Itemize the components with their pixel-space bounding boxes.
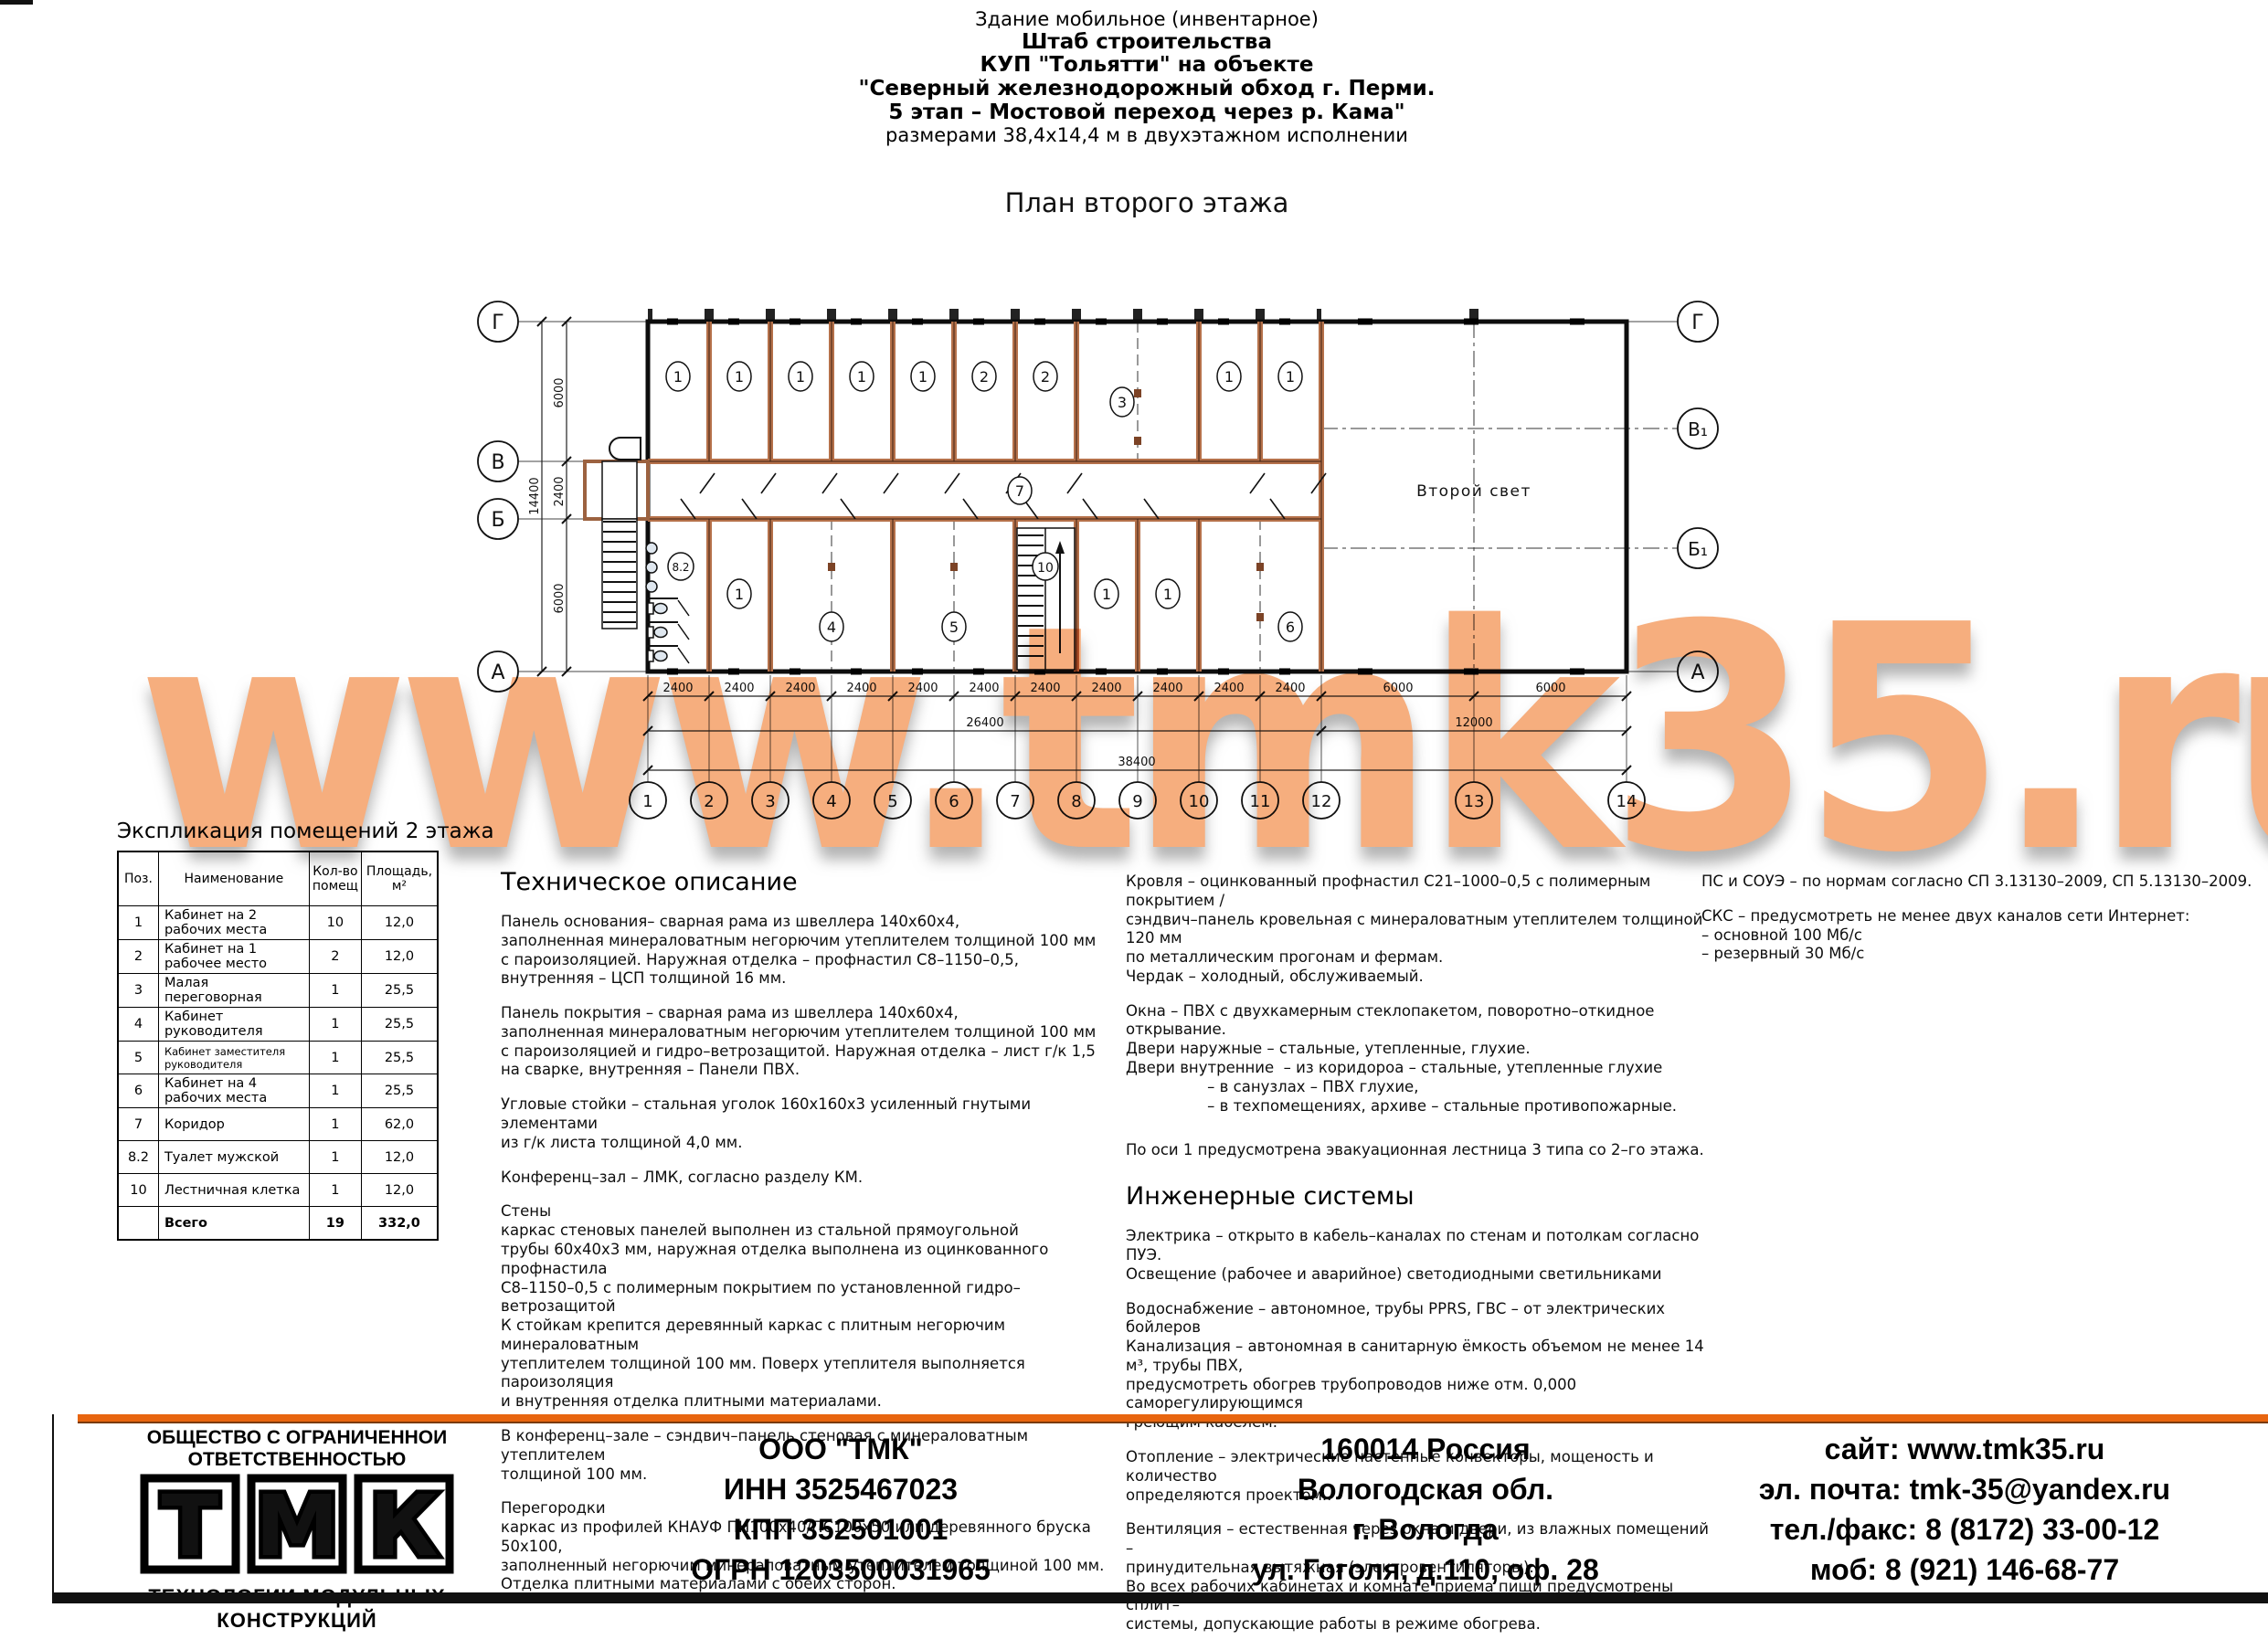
footer-company-requisites: ООО "ТМК" ИНН 3525467023 КПП 352501001 О… (603, 1429, 1078, 1590)
paragraph-corner-posts: Угловые стойки – стальная уголок 160х160… (501, 1095, 1122, 1152)
address-postcode: 160014 Россия (1179, 1429, 1672, 1469)
svg-text:5: 5 (887, 792, 897, 811)
tmk-logo: Т М К (139, 1473, 455, 1577)
door-swings (629, 473, 1326, 519)
paragraph-windows-doors: Окна – ПВХ с двухкамерным стеклопакетом,… (1126, 1002, 1720, 1116)
svg-text:2: 2 (1041, 368, 1050, 386)
address-city: г. Вологда (1179, 1509, 1672, 1550)
svg-text:8.2: 8.2 (672, 561, 689, 574)
paragraph-roofing: Кровля – оцинкованный профнастил С21–100… (1126, 873, 1720, 987)
svg-text:12000: 12000 (1455, 716, 1492, 730)
svg-text:1: 1 (1102, 586, 1111, 603)
svg-text:5: 5 (949, 619, 959, 636)
table-row: 8.2Туалет мужской112,0 (118, 1141, 438, 1174)
plan-title: План второго этажа (1005, 187, 1289, 218)
header-line-6: размерами 38,4х14,4 м в двухэтажном испо… (777, 125, 1517, 147)
company-kpp: КПП 352501001 (603, 1509, 1078, 1550)
svg-text:1: 1 (735, 586, 744, 603)
paragraph-conference-hall: Конференц–зал – ЛМК, согласно разделу КМ… (501, 1169, 1122, 1188)
svg-text:2400: 2400 (1030, 682, 1060, 695)
axis-bubbles-bottom: 1 2 3 4 5 6 7 8 9 10 11 12 13 14 (630, 782, 1645, 819)
header-line-2: Штаб строительства (777, 31, 1517, 55)
table-row: 7Коридор162,0 (118, 1108, 438, 1141)
engineering-systems-heading: Инженерные системы (1126, 1182, 1720, 1211)
room-schedule-title: Экспликация помещений 2 этажа (117, 820, 446, 843)
svg-text:3: 3 (765, 792, 775, 811)
paragraph-electrics: Электрика – открыто в кабель–каналах по … (1126, 1227, 1720, 1284)
svg-text:2400: 2400 (662, 682, 693, 695)
svg-text:Т: Т (162, 1477, 219, 1575)
col-header-pos: Поз. (118, 851, 158, 906)
svg-text:2400: 2400 (1275, 682, 1305, 695)
svg-text:6000: 6000 (553, 583, 567, 613)
company-inn: ИНН 3525467023 (603, 1469, 1078, 1509)
table-row: 1Кабинет на 2 рабочих места1012,0 (118, 906, 438, 940)
svg-text:1: 1 (1224, 368, 1234, 386)
drawing-sheet: { "header": { "lines": [ "Здание мобильн… (0, 0, 2268, 1603)
svg-text:1: 1 (735, 368, 744, 386)
paragraph-walls: Стены каркас стеновых панелей выполнен и… (501, 1202, 1122, 1412)
header-line-1: Здание мобильное (инвентарное) (777, 9, 1517, 31)
svg-text:В₁: В₁ (1688, 418, 1708, 440)
svg-text:2400: 2400 (1213, 682, 1244, 695)
svg-text:6000: 6000 (1535, 682, 1565, 695)
header-line-4: "Северный железнодорожный обход г. Перми… (777, 78, 1517, 101)
svg-text:11: 11 (1250, 792, 1271, 811)
svg-text:7: 7 (1010, 792, 1020, 811)
table-total-row: Всего19332,0 (118, 1207, 438, 1241)
svg-text:А: А (491, 661, 504, 684)
svg-text:Г: Г (1691, 312, 1703, 334)
svg-text:1: 1 (642, 792, 652, 811)
svg-text:8: 8 (1071, 792, 1081, 811)
svg-text:13: 13 (1464, 792, 1485, 811)
axis-bubbles-left: Г В Б А (478, 301, 518, 692)
svg-text:В: В (491, 451, 504, 474)
svg-text:2400: 2400 (969, 682, 999, 695)
header-line-5: 5 этап – Мостовой переход через р. Кама" (777, 101, 1517, 125)
table-header-row: Поз. Наименование Кол-во помещ Площадь, … (118, 851, 438, 906)
svg-text:2400: 2400 (907, 682, 938, 695)
contact-mobile: моб: 8 (921) 146-68-77 (1690, 1550, 2239, 1590)
footer-divider-bar (78, 1414, 2268, 1423)
tmk-logo-tile-t: Т (144, 1477, 236, 1575)
paragraph-base-panel: Панель основания– сварная рама из швелле… (501, 913, 1122, 989)
svg-text:9: 9 (1132, 792, 1142, 811)
room-numbers-bottom: 8.2 1 4 5 10 1 1 6 (668, 553, 1302, 641)
technical-description-heading: Техническое описание (501, 868, 1122, 896)
axis-bubbles-right: Г В₁ Б₁ А (1678, 301, 1718, 692)
svg-text:10: 10 (1189, 792, 1210, 811)
svg-text:2400: 2400 (1152, 682, 1182, 695)
col-header-count: Кол-во помещ (309, 851, 361, 906)
address-region: Вологодская обл. (1179, 1469, 1672, 1509)
svg-text:Б₁: Б₁ (1688, 538, 1708, 560)
table-row: 5Кабинет заместителя руководителя125,5 (118, 1042, 438, 1074)
svg-text:2: 2 (980, 368, 989, 386)
company-ogrn: ОГРН 1203500031965 (603, 1550, 1078, 1590)
dimension-ticks (537, 317, 1631, 775)
svg-text:6: 6 (1286, 619, 1295, 636)
svg-text:14400: 14400 (528, 477, 542, 514)
svg-text:7: 7 (1015, 482, 1024, 500)
paragraph-fire-alarm: ПС и СОУЭ – по нормам согласно СП 3.1313… (1701, 873, 2259, 892)
paragraph-scs: СКС – предусмотреть не менее двух канало… (1701, 907, 2259, 964)
paragraph-escape-stair: По оси 1 предусмотрена эвакуационная лес… (1126, 1141, 1720, 1160)
paragraph-roof-panel: Панель покрытия – сварная рама из швелле… (501, 1004, 1122, 1080)
svg-text:М: М (255, 1477, 339, 1575)
svg-text:1: 1 (796, 368, 805, 386)
contact-email[interactable]: эл. почта: tmk-35@yandex.ru (1690, 1469, 2239, 1509)
svg-text:Б: Б (491, 509, 504, 532)
entry-canopy (609, 438, 641, 460)
staircase (1017, 528, 1075, 670)
contact-website[interactable]: сайт: www.tmk35.ru (1690, 1429, 2239, 1469)
dimension-lines (542, 322, 1627, 770)
svg-text:6: 6 (949, 792, 959, 811)
escape-ladder (602, 461, 637, 629)
contact-phone-fax: тел./факс: 8 (8172) 33-00-12 (1690, 1509, 2239, 1550)
svg-text:1: 1 (918, 368, 927, 386)
table-row: 2Кабинет на 1 рабочее место212,0 (118, 940, 438, 974)
table-row: 4Кабинет руководителя125,5 (118, 1008, 438, 1042)
company-type-label: ОБЩЕСТВО С ОГРАНИЧЕННОИ ОТВЕТСТВЕННОСТЬЮ (91, 1427, 503, 1471)
svg-text:2400: 2400 (553, 476, 567, 506)
sheet-corner-mark (0, 0, 33, 5)
svg-text:2400: 2400 (1091, 682, 1121, 695)
footer-contacts: сайт: www.tmk35.ru эл. почта: tmk-35@yan… (1690, 1429, 2239, 1590)
svg-text:6000: 6000 (1383, 682, 1413, 695)
svg-text:14: 14 (1616, 792, 1637, 811)
tmk-logo-tile-m: М (251, 1477, 343, 1575)
title-block: Здание мобильное (инвентарное) Штаб стро… (777, 9, 1517, 146)
svg-text:1: 1 (857, 368, 866, 386)
table-row: 10Лестничная клетка112,0 (118, 1174, 438, 1207)
table-row: 6Кабинет на 4 рабочих места125,5 (118, 1074, 438, 1108)
footer-bottom-bar (52, 1592, 2268, 1603)
room-schedule: Экспликация помещений 2 этажа Поз. Наиме… (117, 820, 446, 1241)
svg-text:2400: 2400 (846, 682, 876, 695)
svg-text:1: 1 (1286, 368, 1295, 386)
company-name: ООО "ТМК" (603, 1429, 1078, 1469)
paragraph-water: Водоснабжение – автономное, трубы PPRS, … (1126, 1300, 1720, 1433)
corridor-number: 7 (1008, 477, 1032, 504)
tmk-logo-tile-k: К (358, 1477, 450, 1575)
svg-text:4: 4 (826, 792, 836, 811)
right-text-column: ПС и СОУЭ – по нормам согласно СП 3.1313… (1701, 873, 2259, 979)
room-numbers-top: 1 1 1 1 1 2 2 3 1 1 (666, 362, 1302, 417)
address-street: ул. Гоголя, д.110, оф. 28 (1179, 1550, 1672, 1590)
col-header-name: Наименование (158, 851, 309, 906)
svg-text:Г: Г (492, 312, 503, 334)
second-light-label: Второй свет (1416, 482, 1531, 501)
column-mark-13 (1469, 309, 1478, 320)
svg-text:4: 4 (827, 619, 836, 636)
col-header-area: Площадь, м² (361, 851, 438, 906)
svg-text:2400: 2400 (724, 682, 754, 695)
svg-text:3: 3 (1118, 394, 1127, 411)
svg-text:2400: 2400 (785, 682, 815, 695)
svg-text:К: К (369, 1477, 438, 1575)
header-line-3: КУП "Тольятти" на объекте (777, 54, 1517, 78)
floor-plan: План второго этажа 24002400 24002400 240… (439, 164, 1754, 831)
room-schedule-table: Поз. Наименование Кол-во помещ Площадь, … (117, 851, 439, 1241)
svg-text:38400: 38400 (1118, 756, 1155, 769)
svg-text:1: 1 (1163, 586, 1172, 603)
svg-text:10: 10 (1037, 561, 1054, 576)
footer-address: 160014 Россия Вологодская обл. г. Вологд… (1179, 1429, 1672, 1590)
svg-text:А: А (1690, 661, 1704, 684)
svg-text:12: 12 (1311, 792, 1332, 811)
table-row: 3Малая переговорная125,5 (118, 974, 438, 1008)
svg-text:2: 2 (704, 792, 714, 811)
svg-text:26400: 26400 (966, 716, 1003, 730)
footer-left-border (52, 1414, 54, 1603)
svg-text:1: 1 (673, 368, 683, 386)
svg-text:6000: 6000 (553, 377, 567, 407)
